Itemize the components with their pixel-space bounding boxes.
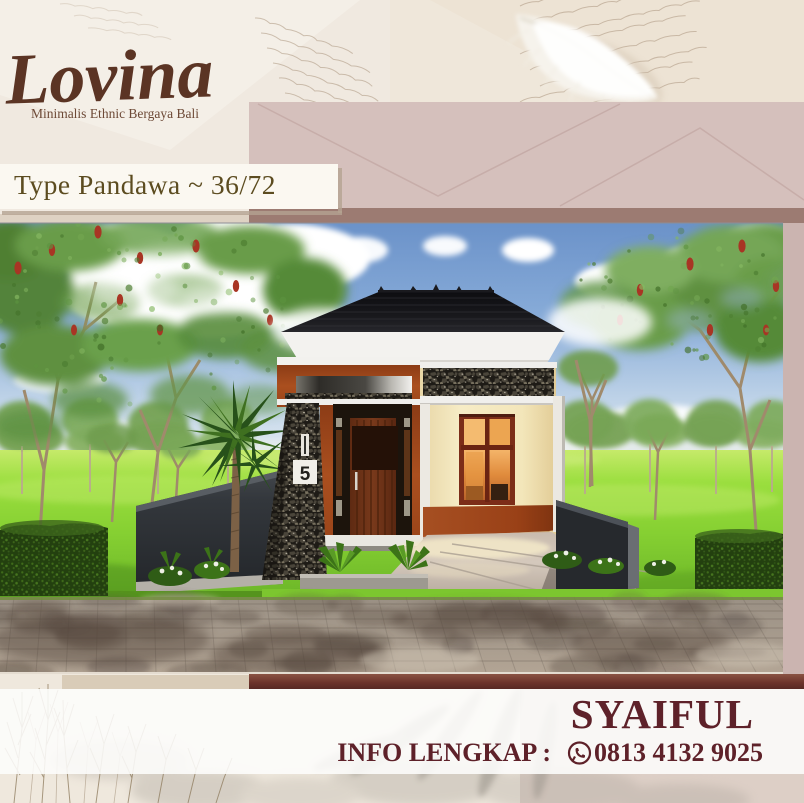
svg-text:5: 5 [300,464,311,485]
svg-text:SYAIFUL: SYAIFUL [571,691,754,737]
svg-text:Minimalis Ethnic Bergaya Bali: Minimalis Ethnic Bergaya Bali [31,106,199,121]
svg-text:0813 4132 9025: 0813 4132 9025 [594,738,763,767]
svg-text:Type Pandawa ~ 36/72: Type Pandawa ~ 36/72 [14,169,276,200]
svg-text:INFO LENGKAP :: INFO LENGKAP : [337,738,551,767]
